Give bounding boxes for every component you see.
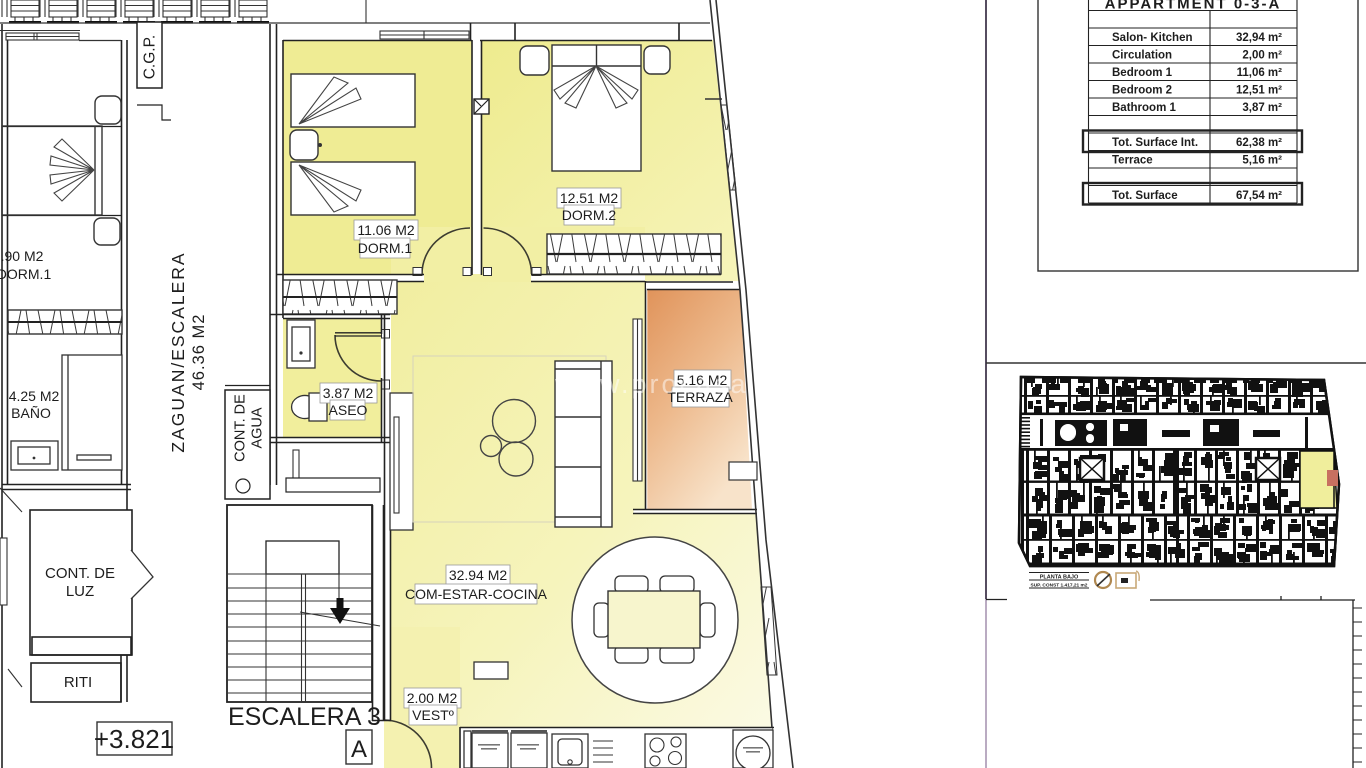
svg-text:3,87 m²: 3,87 m² (1242, 102, 1282, 114)
svg-text:2,00 m²: 2,00 m² (1242, 50, 1282, 62)
svg-text:A: A (351, 736, 367, 763)
svg-text:DORM.1: DORM.1 (358, 240, 413, 256)
svg-text:CONT. DE: CONT. DE (45, 565, 115, 582)
svg-text:ASEO: ASEO (329, 402, 368, 418)
svg-text:ESCALERA 3: ESCALERA 3 (228, 703, 381, 731)
svg-text:Tot. Surface Int.: Tot. Surface Int. (1112, 137, 1198, 149)
svg-text:32,94 m²: 32,94 m² (1236, 32, 1282, 44)
svg-text:32.94 M2: 32.94 M2 (449, 567, 508, 583)
svg-text:+3.821: +3.821 (94, 724, 174, 754)
svg-text:CONT. DE: CONT. DE (233, 394, 249, 462)
svg-text:DORM.1: DORM.1 (0, 266, 51, 282)
svg-text:Terrace: Terrace (1112, 155, 1153, 167)
svg-text:2.00 M2: 2.00 M2 (407, 690, 458, 706)
svg-text:5,16 m²: 5,16 m² (1242, 155, 1282, 167)
svg-text:11.06 M2: 11.06 M2 (357, 222, 415, 238)
svg-text:APPARTMENT 0-3-A: APPARTMENT 0-3-A (1105, 0, 1282, 13)
svg-text:AGUA: AGUA (250, 407, 266, 448)
svg-text:PLANTA BAJO: PLANTA BAJO (1040, 575, 1079, 581)
svg-text:Tot. Surface: Tot. Surface (1112, 190, 1178, 202)
svg-text:67,54 m²: 67,54 m² (1236, 190, 1282, 202)
svg-text:.90 M2: .90 M2 (1, 248, 44, 264)
svg-text:Salon- Kitchen: Salon- Kitchen (1112, 32, 1193, 44)
svg-text:12,51 m²: 12,51 m² (1236, 85, 1282, 97)
svg-text:3.87 M2: 3.87 M2 (323, 385, 374, 401)
svg-text:4.25 M2: 4.25 M2 (9, 388, 60, 404)
svg-text:BAÑO: BAÑO (11, 405, 51, 421)
svg-text:Bathroom 1: Bathroom 1 (1112, 102, 1177, 114)
svg-text:62,38 m²: 62,38 m² (1236, 137, 1282, 149)
svg-text:11,06 m²: 11,06 m² (1237, 67, 1283, 79)
svg-text:46.36 M2: 46.36 M2 (190, 314, 208, 391)
svg-text:C.G.P.: C.G.P. (142, 35, 159, 80)
svg-text:COM-ESTAR-COCINA: COM-ESTAR-COCINA (405, 586, 548, 602)
svg-text:Circulation: Circulation (1112, 50, 1172, 62)
svg-text:DORM.2: DORM.2 (562, 207, 617, 223)
svg-text:RITI: RITI (64, 674, 92, 691)
svg-text:LUZ: LUZ (66, 583, 94, 600)
svg-text:12.51 M2: 12.51 M2 (560, 190, 619, 206)
svg-text:www.procasa: www.procasa (554, 369, 749, 399)
svg-text:Bedroom 2: Bedroom 2 (1112, 85, 1172, 97)
svg-text:SUP. CONST 1.417,21 m2: SUP. CONST 1.417,21 m2 (1031, 583, 1088, 589)
svg-text:Bedroom 1: Bedroom 1 (1112, 67, 1173, 79)
svg-text:ZAGUAN/ESCALERA: ZAGUAN/ESCALERA (168, 251, 188, 452)
svg-text:VESTº: VESTº (412, 707, 454, 723)
